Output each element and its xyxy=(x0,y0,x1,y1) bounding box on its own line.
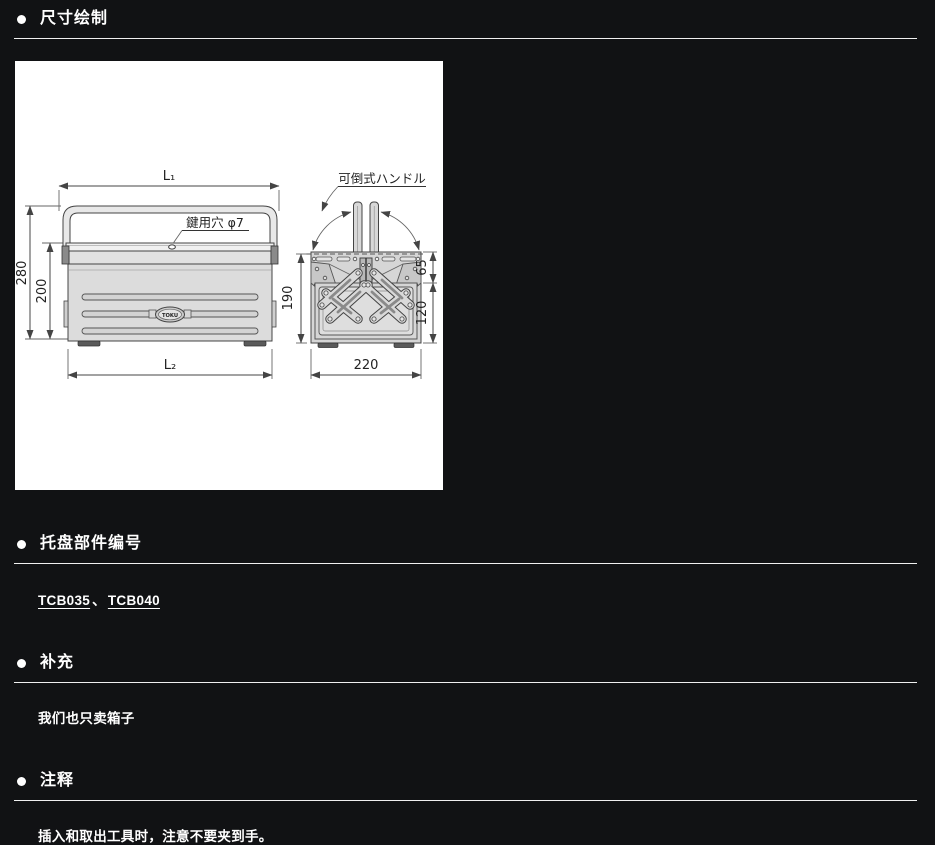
keyhole-label: 鍵用穴 φ7 xyxy=(186,215,244,230)
dim-120-label: 120 xyxy=(415,301,430,326)
keyhole xyxy=(169,245,176,249)
section-rule xyxy=(14,682,917,683)
dim-220-label: 220 xyxy=(354,358,379,373)
bullet-icon xyxy=(17,540,26,549)
tray-part-links: TCB035、TCB040 xyxy=(38,589,917,609)
dim-l2-label: L₂ xyxy=(164,358,176,373)
bullet-icon xyxy=(17,15,26,24)
dim-65-label: 65 xyxy=(415,259,430,276)
folding-handle-label: 可倒式ハンドル xyxy=(338,171,426,186)
dim-280-label: 280 xyxy=(15,261,30,286)
dim-200-label: 200 xyxy=(35,279,50,304)
dimension-drawing-panel: L₁ 280 200 L₂ 鍵用穴 φ7 xyxy=(15,61,443,490)
bullet-icon xyxy=(17,777,26,786)
front-right-foot xyxy=(244,341,266,346)
section-header-notes: 注释 xyxy=(14,770,917,792)
section-title-dimensions: 尺寸绘制 xyxy=(40,8,108,30)
dim-l1-label: L₁ xyxy=(163,169,175,184)
brand-logo-text: TOKU xyxy=(162,313,178,319)
section-header-supplement: 补充 xyxy=(14,652,917,674)
right-hinge-tab xyxy=(272,301,276,327)
side-right-foot xyxy=(394,343,414,348)
section-title-notes: 注释 xyxy=(40,770,74,792)
part-link-tcb035[interactable]: TCB035 xyxy=(38,593,90,608)
fold-arc-left xyxy=(313,212,351,250)
dimension-drawing: L₁ 280 200 L₂ 鍵用穴 φ7 xyxy=(15,61,443,490)
front-view: L₁ 280 200 L₂ 鍵用穴 φ7 xyxy=(15,169,279,379)
supplement-text: 我们也只卖箱子 xyxy=(38,707,917,727)
part-link-tcb040[interactable]: TCB040 xyxy=(108,593,160,608)
section-header-dimensions: 尺寸绘制 xyxy=(14,8,917,30)
section-rule xyxy=(14,563,917,564)
section-title-supplement: 补充 xyxy=(40,652,74,674)
side-left-foot xyxy=(318,343,338,348)
notes-text: 插入和取出工具时，注意不要夹到手。 xyxy=(38,825,917,845)
section-rule xyxy=(14,38,917,39)
link-separator: 、 xyxy=(90,593,108,608)
section-header-tray: 托盘部件编号 xyxy=(14,533,917,555)
side-view: 可倒式ハンドル xyxy=(281,171,437,379)
bullet-icon xyxy=(17,659,26,668)
section-rule xyxy=(14,800,917,801)
lid xyxy=(69,251,271,264)
left-clasp xyxy=(62,246,69,264)
front-handle xyxy=(63,206,277,247)
front-left-foot xyxy=(78,341,100,346)
page: 尺寸绘制 xyxy=(0,0,935,845)
dim-190-label: 190 xyxy=(281,286,296,311)
section-title-tray: 托盘部件编号 xyxy=(40,533,142,555)
fold-arc-right xyxy=(381,212,419,250)
left-hinge-tab xyxy=(64,301,68,327)
right-clasp xyxy=(271,246,278,264)
